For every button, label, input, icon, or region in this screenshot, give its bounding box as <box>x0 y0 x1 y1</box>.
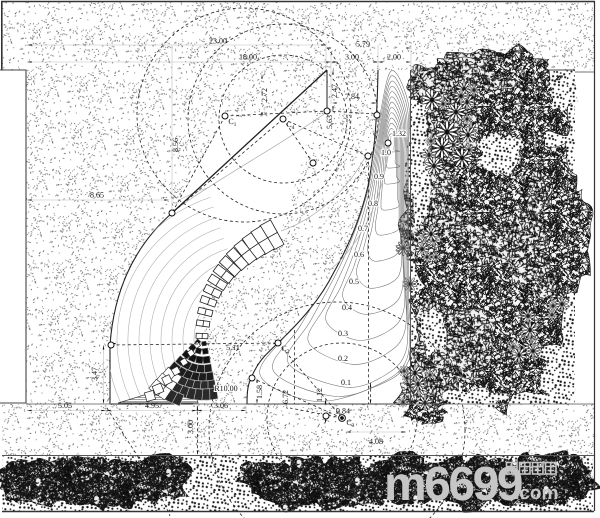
svg-text:6.72: 6.72 <box>281 390 290 404</box>
svg-text:4.95: 4.95 <box>145 401 159 410</box>
svg-text:0.9: 0.9 <box>374 172 384 181</box>
svg-text:5.63: 5.63 <box>325 115 334 129</box>
svg-text:23.00: 23.00 <box>209 37 227 46</box>
svg-text:2.00: 2.00 <box>387 53 401 62</box>
svg-text:0.8: 0.8 <box>368 199 378 208</box>
svg-text:0.1: 0.1 <box>341 378 351 387</box>
svg-text:1.12: 1.12 <box>315 388 324 402</box>
svg-text:0.4: 0.4 <box>342 303 352 312</box>
svg-text:3.00: 3.00 <box>186 420 195 434</box>
svg-text:R10.00: R10.00 <box>214 384 237 393</box>
svg-text:3.06: 3.06 <box>214 401 228 410</box>
svg-text:5.05: 5.05 <box>58 401 72 410</box>
svg-text:0.6: 0.6 <box>354 250 364 259</box>
svg-text:1.32: 1.32 <box>392 129 406 138</box>
svg-text:5.79: 5.79 <box>356 40 370 49</box>
svg-text:3: 3 <box>352 423 355 429</box>
svg-text:7.84: 7.84 <box>345 92 359 101</box>
svg-text:.com: .com <box>514 483 558 504</box>
svg-text:5.11: 5.11 <box>226 343 240 352</box>
svg-text:4.08: 4.08 <box>369 437 383 446</box>
svg-text:2.47: 2.47 <box>330 84 339 98</box>
svg-text:3.47: 3.47 <box>90 367 99 381</box>
svg-text:0.2: 0.2 <box>338 354 348 363</box>
svg-text:0.7: 0.7 <box>358 224 368 233</box>
svg-text:8.65: 8.65 <box>90 191 104 200</box>
svg-text:4: 4 <box>292 125 295 131</box>
svg-text:m6699: m6699 <box>384 458 522 511</box>
svg-text:1: 1 <box>234 122 237 128</box>
svg-text:0.3: 0.3 <box>338 329 348 338</box>
svg-text:1.0: 1.0 <box>381 148 391 157</box>
svg-text:0.5: 0.5 <box>349 277 359 286</box>
svg-text:2.72: 2.72 <box>260 88 269 102</box>
svg-text:9.84: 9.84 <box>336 407 350 416</box>
svg-text:18.00: 18.00 <box>239 53 257 62</box>
svg-text:8.56: 8.56 <box>171 138 180 152</box>
svg-text:2: 2 <box>287 349 290 355</box>
svg-text:3.00: 3.00 <box>345 53 359 62</box>
svg-text:1.58: 1.58 <box>255 385 264 399</box>
